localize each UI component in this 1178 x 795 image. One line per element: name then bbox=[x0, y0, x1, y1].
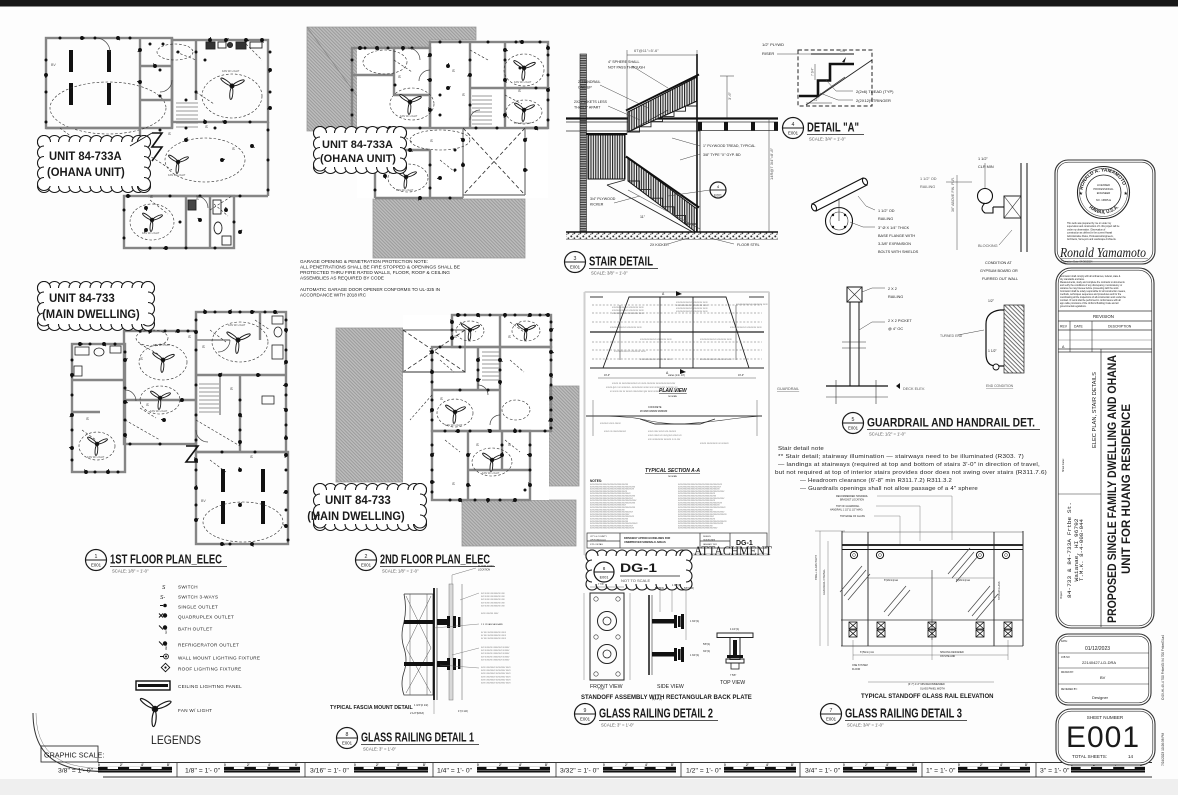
svg-text:SINGLE OUTLET: SINGLE OUTLET bbox=[178, 605, 218, 610]
svg-text:##### ## ############# ## ####: ##### ## ############# ## #### ####### #… bbox=[612, 383, 676, 385]
svg-text:REV: REV bbox=[1060, 325, 1068, 329]
svg-text:4': 4' bbox=[519, 763, 522, 767]
svg-text:S: S bbox=[232, 146, 235, 151]
svg-text:1/4": 1/4" bbox=[840, 49, 847, 53]
svg-text:1/2": 1/2" bbox=[988, 299, 995, 303]
svg-text:FLOOR: FLOOR bbox=[852, 668, 861, 671]
svg-text:############# ######## ####: ############# ######## #### bbox=[640, 359, 672, 361]
svg-text:7 3/4": 7 3/4" bbox=[811, 68, 815, 76]
svg-text:S: S bbox=[452, 68, 455, 73]
svg-text:1 1/2" OD: 1 1/2" OD bbox=[878, 209, 895, 213]
svg-text:7 5/8": 7 5/8" bbox=[730, 674, 736, 677]
svg-text:1" PLYWOOD TREAD, TYPICAL: 1" PLYWOOD TREAD, TYPICAL bbox=[703, 144, 755, 148]
svg-text:Administrative Rules, Professi: Administrative Rules, Professional Engin… bbox=[1067, 235, 1114, 238]
svg-text:2: 2 bbox=[365, 554, 368, 560]
svg-text:5/8"MIN: 5/8"MIN bbox=[655, 587, 664, 590]
svg-text:2(2x6) TREAD (TYP): 2(2x6) TREAD (TYP) bbox=[856, 89, 894, 94]
svg-text:3: 3 bbox=[574, 256, 577, 262]
svg-text:#### ##### ## ### (### ##### #: #### ##### ## ### (### ##### ## bbox=[648, 435, 682, 437]
svg-text:S: S bbox=[140, 356, 143, 361]
svg-text:FAN W/ LIGHT: FAN W/ LIGHT bbox=[482, 471, 500, 475]
svg-text:GYPSUM BOARD OR: GYPSUM BOARD OR bbox=[980, 269, 1018, 273]
svg-text:but not required at top of int: but not required at top of interior stai… bbox=[775, 470, 1047, 476]
svg-text:1 1/2": 1 1/2" bbox=[988, 349, 998, 353]
svg-text:2': 2' bbox=[376, 763, 379, 767]
svg-text:0: 0 bbox=[98, 763, 100, 767]
svg-text:NOT TO SCALE: NOT TO SCALE bbox=[621, 578, 650, 583]
svg-text:#### ## ###########: #### ## ########### bbox=[604, 431, 627, 433]
svg-text:4': 4' bbox=[886, 763, 889, 767]
svg-text:(MAIN DWELLING): (MAIN DWELLING) bbox=[42, 309, 140, 321]
svg-text:8"(20cm)max: 8"(20cm)max bbox=[956, 579, 971, 582]
svg-text:1 3/4"(4): 1 3/4"(4) bbox=[690, 654, 699, 657]
svg-text:1 3/8"(4): 1 3/8"(4) bbox=[672, 584, 681, 587]
svg-text:TOP EDGE OF GLASS: TOP EDGE OF GLASS bbox=[840, 515, 865, 518]
svg-text:16'-0": 16'-0" bbox=[738, 374, 744, 377]
svg-text:############# ######## ####: ############# ######## #### bbox=[612, 307, 644, 309]
svg-text:01/12/2023: 01/12/2023 bbox=[1085, 646, 1110, 652]
svg-text:2': 2' bbox=[247, 763, 250, 767]
svg-text:ACCORDANCE WITH 2018 IRC: ACCORDANCE WITH 2018 IRC bbox=[300, 293, 366, 298]
svg-text:SPACING DESIGNED: SPACING DESIGNED bbox=[940, 651, 964, 654]
svg-text:############# ######## ####: ############# ######## #### bbox=[676, 305, 708, 307]
svg-text:0: 0 bbox=[843, 763, 845, 767]
svg-text:FAN W/ LIGHT: FAN W/ LIGHT bbox=[150, 409, 168, 413]
svg-text:ELEC PLAN, STAIR DETAILS: ELEC PLAN, STAIR DETAILS bbox=[1092, 372, 1098, 448]
svg-text:1 3/4"(4): 1 3/4"(4) bbox=[690, 620, 699, 623]
svg-text:RAILING: RAILING bbox=[920, 185, 935, 189]
svg-text:S: S bbox=[476, 442, 479, 447]
svg-text:S-: S- bbox=[160, 595, 165, 601]
svg-text:WALL MOUNT LIGHTING FIXTURE: WALL MOUNT LIGHTING FIXTURE bbox=[178, 656, 260, 661]
svg-text:contract. IF work shall be p: contract. IF work shall be performed in … bbox=[1060, 299, 1121, 302]
svg-text:11": 11" bbox=[814, 98, 818, 102]
svg-text:BATH OUTLET: BATH OUTLET bbox=[178, 627, 213, 632]
svg-text:This work was prepared by me o: This work was prepared by me or under my bbox=[1067, 222, 1112, 225]
svg-text:S: S bbox=[440, 396, 443, 401]
svg-text:DATE:: DATE: bbox=[1061, 640, 1068, 643]
svg-text:STAIR DETAIL: STAIR DETAIL bbox=[589, 254, 653, 269]
svg-text:22140427-LD-DRA: 22140427-LD-DRA bbox=[1082, 660, 1116, 665]
svg-text:8': 8' bbox=[912, 763, 915, 767]
svg-text:CITY & COUNTY: CITY & COUNTY bbox=[590, 536, 607, 538]
svg-text:## ### ########### ####: ## ### ########### #### bbox=[481, 635, 507, 637]
svg-text:★: ★ bbox=[1124, 191, 1129, 197]
svg-text:GARAGE OPENING & PENETRATION P: GARAGE OPENING & PENETRATION PROTECTION … bbox=[300, 259, 428, 264]
svg-text:4': 4' bbox=[268, 763, 271, 767]
svg-text:S: S bbox=[518, 88, 521, 93]
svg-text:UNIT 84-733A: UNIT 84-733A bbox=[49, 151, 122, 163]
svg-text:E001: E001 bbox=[342, 741, 353, 746]
svg-text:E001: E001 bbox=[848, 426, 859, 431]
svg-text:BLOCKING: BLOCKING bbox=[978, 244, 998, 248]
svg-text:2" HANDRAIL: 2" HANDRAIL bbox=[578, 80, 600, 84]
svg-text:UNIT 84-733: UNIT 84-733 bbox=[325, 495, 391, 507]
svg-text:Contractor shall comply with: Contractor shall comply with all ordinan… bbox=[1060, 275, 1121, 278]
svg-text:#### ###### ####: #### ###### #### bbox=[481, 613, 499, 615]
svg-text:PROTECTED THRU FIRE RATED WALL: PROTECTED THRU FIRE RATED WALLS, FLOOR, … bbox=[300, 270, 451, 275]
svg-text:2X2 PICKETS LESS: 2X2 PICKETS LESS bbox=[574, 100, 608, 104]
svg-text:S: S bbox=[454, 334, 457, 339]
svg-text:############# ######## ####: ############# ######## #### bbox=[736, 304, 768, 306]
svg-text:4': 4' bbox=[1000, 763, 1003, 767]
svg-text:SYSTEM GLASS: SYSTEM GLASS bbox=[998, 581, 1001, 600]
svg-text:TYPICAL STANDOFF GLASS RAIL EL: TYPICAL STANDOFF GLASS RAIL ELEVATION bbox=[861, 694, 993, 700]
svg-text:8: 8 bbox=[603, 566, 606, 571]
svg-text:construction as defined in the: construction as defined in the current H… bbox=[1067, 232, 1113, 235]
svg-text:5/8"(4): 5/8"(4) bbox=[703, 643, 710, 646]
svg-text:4': 4' bbox=[645, 763, 648, 767]
svg-text:### ###### ######## ######: ### ###### ######## ###### bbox=[481, 653, 510, 655]
svg-text:4': 4' bbox=[141, 763, 144, 767]
svg-text:S: S bbox=[250, 454, 253, 459]
svg-text:### ###### ######## ######: ### ###### ######## ###### bbox=[481, 656, 510, 658]
svg-text:0: 0 bbox=[603, 763, 605, 767]
svg-text:5: 5 bbox=[852, 417, 855, 423]
svg-text:RISER: RISER bbox=[762, 51, 774, 56]
svg-text:BV: BV bbox=[201, 499, 206, 503]
svg-text:#### ######## ######## ####: #### ######## ######## #### bbox=[481, 676, 511, 678]
svg-text:LOCATION: LOCATION bbox=[478, 569, 490, 572]
svg-text:FAN W/ LIGHT: FAN W/ LIGHT bbox=[396, 188, 414, 192]
svg-text:4: 4 bbox=[792, 122, 795, 128]
svg-text:E001: E001 bbox=[1066, 721, 1140, 754]
svg-text:## #### ###### #######: ## #### ###### ####### bbox=[640, 410, 668, 413]
svg-text:E001: E001 bbox=[714, 194, 722, 198]
svg-text:FRONT VIEW: FRONT VIEW bbox=[590, 684, 623, 690]
svg-text:## ### ########### ####: ## ### ########### #### bbox=[481, 632, 507, 634]
svg-text:6T@11"=5'-6": 6T@11"=5'-6" bbox=[634, 48, 659, 53]
svg-text:BOLTS WITH SHIELDS: BOLTS WITH SHIELDS bbox=[878, 250, 919, 254]
svg-text:3/8" = 1'- 0": 3/8" = 1'- 0" bbox=[58, 768, 94, 775]
svg-text:3/4" = 1'- 0": 3/4" = 1'- 0" bbox=[805, 768, 841, 775]
svg-text:TOP VIEW: TOP VIEW bbox=[720, 680, 745, 686]
svg-text:1/8" = 1'- 0": 1/8" = 1'- 0" bbox=[185, 768, 221, 775]
svg-text:2': 2' bbox=[625, 763, 628, 767]
svg-text:7: 7 bbox=[830, 708, 833, 714]
svg-text:####### #### #####: ####### #### ##### bbox=[600, 423, 621, 425]
svg-text:8: 8 bbox=[346, 732, 349, 738]
svg-text:ATTACHMENT: ATTACHMENT bbox=[694, 544, 772, 558]
svg-text:FAN W/ LIGHT: FAN W/ LIGHT bbox=[178, 708, 212, 713]
svg-text:3" Ø X 1/4" THICK: 3" Ø X 1/4" THICK bbox=[878, 226, 910, 230]
svg-text:S: S bbox=[146, 402, 149, 407]
svg-text:## ### ########### ####: ## ### ########### #### bbox=[481, 638, 507, 640]
svg-text:############# ######## ####: ############# ######## #### bbox=[676, 302, 708, 304]
svg-text:app cable provisions of the Un: app cable provisions of the Uniform Buil… bbox=[1060, 302, 1119, 305]
svg-text:RAILING: RAILING bbox=[878, 217, 893, 221]
svg-text:DESIGN: DESIGN bbox=[703, 536, 711, 538]
svg-text:STANDOFF ASSEMBLY WITH RECTANG: STANDOFF ASSEMBLY WITH RECTANGULAR BACK … bbox=[581, 695, 752, 701]
svg-text:2ND FLOOR PLAN_ELEC: 2ND FLOOR PLAN_ELEC bbox=[380, 553, 490, 567]
svg-text:CONDITION AT: CONDITION AT bbox=[985, 261, 1012, 265]
svg-text:1 3/4"(2 1/2): 1 3/4"(2 1/2) bbox=[414, 703, 428, 707]
svg-text:##############################: ###################################### bbox=[590, 528, 635, 530]
svg-text:4': 4' bbox=[766, 763, 769, 767]
svg-text:### #### ######### ###: ### #### ######### ### bbox=[481, 602, 506, 604]
svg-text:11": 11" bbox=[640, 215, 646, 219]
svg-text:S: S bbox=[430, 138, 433, 143]
svg-text:supervision and construction o: supervision and construction of 1 this p… bbox=[1067, 225, 1120, 228]
svg-text:### #### ######### ###: ### #### ######### ### bbox=[481, 605, 506, 607]
svg-text:FAN W/ LIGHT: FAN W/ LIGHT bbox=[222, 69, 240, 73]
svg-text:2': 2' bbox=[120, 763, 123, 767]
svg-text:E001: E001 bbox=[788, 131, 799, 136]
svg-text:THAN 4" APART: THAN 4" APART bbox=[574, 106, 601, 110]
svg-text:S: S bbox=[508, 442, 511, 447]
svg-text:T.M.K. 8-4-008-044: T.M.K. 8-4-008-044 bbox=[1079, 519, 1085, 581]
svg-text:under my observation. Observa: under my observation. Observation of bbox=[1067, 228, 1106, 231]
svg-text:ASSEMBLIES AS REQUIRED BY CODE: ASSEMBLIES AS REQUIRED BY CODE bbox=[300, 276, 384, 281]
svg-text:2': 2' bbox=[499, 763, 502, 767]
svg-text:ONE/UP: ONE/UP bbox=[578, 86, 592, 90]
svg-text:QUADRUPLEX OUTLET: QUADRUPLEX OUTLET bbox=[178, 615, 234, 620]
svg-text:SCALE: 1/8" = 1'-0": SCALE: 1/8" = 1'-0" bbox=[382, 569, 419, 574]
svg-text:no scale: no scale bbox=[668, 475, 678, 478]
svg-text:S: S bbox=[462, 92, 465, 97]
svg-text:8': 8' bbox=[545, 763, 548, 767]
svg-text:8': 8' bbox=[423, 763, 426, 767]
svg-text:6"(50cm) min: 6"(50cm) min bbox=[860, 651, 875, 654]
svg-text:9: 9 bbox=[584, 708, 587, 714]
svg-text:1/4" = 1'- 0": 1/4" = 1'- 0" bbox=[437, 768, 473, 775]
svg-text:0: 0 bbox=[224, 763, 226, 767]
svg-text:O 09-HI-49-4 700 Frtbe/GI 94 7: O 09-HI-49-4 700 Frtbe/GI 94 700 Frtbe/G… bbox=[1161, 635, 1165, 700]
svg-text:ON SITE AND: ON SITE AND bbox=[940, 655, 955, 658]
svg-text:E001: E001 bbox=[826, 717, 837, 722]
svg-text:##### ######### ## ######: ##### ######### ## ###### bbox=[700, 443, 729, 445]
svg-text:— Guardrails openings shall no: — Guardrails openings shall not allow pa… bbox=[800, 486, 978, 492]
svg-text:FAN W/ LIGHT: FAN W/ LIGHT bbox=[168, 173, 186, 177]
svg-text:END CONDITION: END CONDITION bbox=[986, 384, 1014, 388]
svg-text:TYPICAL FASCIA MOUNT DETAIL: TYPICAL FASCIA MOUNT DETAIL bbox=[330, 705, 413, 711]
svg-text:E001: E001 bbox=[361, 563, 372, 568]
svg-text:3'WALL GLASS HIGHT: 3'WALL GLASS HIGHT bbox=[815, 555, 818, 580]
svg-text:Architects, Surveyors and Land: Architects, Surveyors and Landscape Arch… bbox=[1067, 238, 1117, 241]
svg-text:GFI: GFI bbox=[164, 629, 168, 634]
svg-text:ALL PENETRATIONS SHALL BE FIRE: ALL PENETRATIONS SHALL BE FIRE STOPPED &… bbox=[300, 265, 460, 270]
svg-text:DRAWN BY:: DRAWN BY: bbox=[1061, 671, 1074, 674]
svg-text:SCALE: 3/4" = 1'-0": SCALE: 3/4" = 1'-0" bbox=[847, 723, 884, 728]
svg-text:DRIVEWAY APRON GUIDELINES FOR: DRIVEWAY APRON GUIDELINES FOR bbox=[624, 536, 670, 540]
svg-text:DETAIL "A": DETAIL "A" bbox=[807, 120, 859, 135]
svg-text:### ###### ######## ######: ### ###### ######## ###### bbox=[481, 647, 510, 649]
svg-text:2': 2' bbox=[980, 763, 983, 767]
svg-text:SWITCH: SWITCH bbox=[178, 585, 198, 590]
svg-text:14R@7 3/4"=8'-8": 14R@7 3/4"=8'-8" bbox=[769, 147, 774, 180]
svg-text:FLOOR STRL: FLOOR STRL bbox=[737, 243, 760, 247]
svg-text:### #### ######### ###: ### #### ######### ### bbox=[481, 599, 506, 601]
svg-text:DESCRIPTION: DESCRIPTION bbox=[1108, 325, 1132, 329]
svg-text:3-3/8" EXPANSION: 3-3/8" EXPANSION bbox=[878, 242, 911, 246]
svg-text:TOTAL SHEETS:: TOTAL SHEETS: bbox=[1072, 754, 1107, 759]
svg-text:S: S bbox=[86, 416, 89, 421]
svg-text:############# ######## ####: ############# ######## #### bbox=[640, 339, 672, 341]
svg-text:1/2" PLYWD: 1/2" PLYWD bbox=[762, 42, 784, 47]
svg-text:14: 14 bbox=[1128, 754, 1134, 759]
svg-text:2(2X12)STRINGER: 2(2X12)STRINGER bbox=[856, 98, 891, 103]
svg-text:GUARDRAIL: GUARDRAIL bbox=[777, 387, 799, 391]
svg-text:and verify the conditions of a: and verify the conditions of any discrep… bbox=[1060, 284, 1122, 287]
svg-text:S: S bbox=[150, 194, 153, 199]
svg-text:### #### ######### ###: ### #### ######### ### bbox=[481, 596, 506, 598]
svg-text:### #### ######### ###: ### #### ######### ### bbox=[481, 593, 506, 595]
svg-text:3/8" TYPE "X" GYP. BD: 3/8" TYPE "X" GYP. BD bbox=[703, 153, 741, 157]
svg-text:2': 2' bbox=[746, 763, 749, 767]
svg-text:GUIDELINES: GUIDELINES bbox=[703, 540, 716, 542]
svg-text:CLR MIN: CLR MIN bbox=[978, 165, 994, 169]
svg-text:SCALE: 1/8" = 1'-0": SCALE: 1/8" = 1'-0" bbox=[112, 569, 149, 574]
svg-text:8"(20cm)max: 8"(20cm)max bbox=[884, 579, 899, 582]
svg-text:methods, techniques sequences: methods, techniques sequences and proced… bbox=[1060, 293, 1122, 296]
svg-text:8': 8' bbox=[791, 763, 794, 767]
svg-text:3/16" = 1'- 0": 3/16" = 1'- 0" bbox=[310, 768, 349, 775]
svg-text:S: S bbox=[230, 386, 233, 391]
svg-text:S: S bbox=[452, 481, 455, 486]
svg-text:Measurements, study and comple: Measurements, study and complete the con… bbox=[1060, 281, 1125, 284]
svg-text:JOB NO:: JOB NO: bbox=[1061, 657, 1071, 659]
svg-text:### ###### ######## ######: ### ###### ######## ###### bbox=[481, 659, 510, 661]
svg-text:NO. 16805-E: NO. 16805-E bbox=[1096, 198, 1111, 202]
svg-text:BRACKET LOCATION: BRACKET LOCATION bbox=[840, 499, 864, 502]
svg-text:############# ######## ####: ############# ######## #### bbox=[676, 308, 708, 310]
svg-text:REVIEWED BY:: REVIEWED BY: bbox=[1061, 689, 1078, 691]
svg-text:Sheet name:: Sheet name: bbox=[1062, 458, 1065, 472]
svg-text:### ###### ######## ######: ### ###### ######## ###### bbox=[481, 650, 510, 652]
svg-text:2 X 2: 2 X 2 bbox=[888, 287, 897, 291]
svg-text:3" = 1'- 0": 3" = 1'- 0" bbox=[1040, 768, 1070, 775]
svg-text:UNIT FOR HUANG RESIDENCE: UNIT FOR HUANG RESIDENCE bbox=[1119, 404, 1133, 574]
svg-text:36" ABOVE FIN. FLR.: 36" ABOVE FIN. FLR. bbox=[951, 177, 955, 212]
svg-text:0: 0 bbox=[958, 763, 960, 767]
svg-text:1"(3 1/2): 1"(3 1/2) bbox=[458, 709, 468, 713]
svg-text:S: S bbox=[205, 124, 208, 129]
svg-text:NOTES:: NOTES: bbox=[590, 479, 602, 483]
svg-text:1 1/2": 1 1/2" bbox=[978, 157, 988, 161]
svg-text:LICENSED: LICENSED bbox=[1097, 183, 1110, 187]
svg-text:0: 0 bbox=[477, 763, 479, 767]
svg-text:#### #### #### ### ######: #### #### #### ### ###### bbox=[648, 431, 677, 433]
svg-text:coordinating all the inspectio: coordinating all the inspections of all … bbox=[1060, 296, 1126, 299]
svg-text:OF HONOLULU: OF HONOLULU bbox=[590, 540, 606, 542]
svg-text:3/4" PLYWOOD: 3/4" PLYWOOD bbox=[590, 197, 616, 201]
svg-text:DECK ELEV.: DECK ELEV. bbox=[903, 387, 925, 391]
svg-text:FAN W/ LIGHT: FAN W/ LIGHT bbox=[400, 114, 418, 118]
svg-text:REF: REF bbox=[164, 644, 168, 650]
svg-text:GLASS PANEL WIDTH: GLASS PANEL WIDTH bbox=[920, 688, 945, 691]
svg-text:0: 0 bbox=[354, 763, 356, 767]
svg-text:NOT PASS THROUGH: NOT PASS THROUGH bbox=[608, 66, 645, 70]
svg-text:UNIT 84-733A: UNIT 84-733A bbox=[322, 139, 393, 151]
svg-text:8': 8' bbox=[671, 763, 674, 767]
svg-text:(OHANA UNIT): (OHANA UNIT) bbox=[47, 167, 125, 179]
svg-text:1ST FLOOR PLAN_ELEC: 1ST FLOOR PLAN_ELEC bbox=[110, 553, 222, 567]
svg-text:DATE: DATE bbox=[1074, 325, 1084, 329]
svg-text:FAN W/ LIGHT: FAN W/ LIGHT bbox=[87, 455, 105, 459]
svg-text:4" SPHERE SHALL: 4" SPHERE SHALL bbox=[608, 60, 639, 64]
svg-text:############# ######## ####: ############# ######## #### bbox=[612, 310, 644, 312]
svg-text:CEILING LIGHTING PANEL: CEILING LIGHTING PANEL bbox=[178, 684, 242, 689]
svg-text:★: ★ bbox=[1079, 191, 1084, 197]
svg-text:SHEET NUMBER: SHEET NUMBER bbox=[1087, 715, 1124, 720]
svg-text:GLASS RAILING DETAIL 2: GLASS RAILING DETAIL 2 bbox=[599, 707, 713, 721]
svg-text:(6'-7") 4'-6" MIN RECOMMENDED: (6'-7") 4'-6" MIN RECOMMENDED bbox=[908, 683, 945, 686]
svg-text:BV: BV bbox=[1100, 675, 1106, 680]
svg-text:GUARDRAIL AND HANDRAIL DET.: GUARDRAIL AND HANDRAIL DET. bbox=[867, 418, 1035, 430]
svg-text:SWITCH 3-WAYS: SWITCH 3-WAYS bbox=[178, 595, 218, 600]
svg-text:FAN W/ LIGHT: FAN W/ LIGHT bbox=[514, 80, 532, 84]
svg-text:PROFESSIONAL: PROFESSIONAL bbox=[1093, 187, 1114, 191]
svg-text:RAILING: RAILING bbox=[888, 295, 903, 299]
svg-text:governmental regulations.: governmental regulations. bbox=[1060, 305, 1087, 308]
svg-text:#### ######## ######## ####: #### ######## ######## #### bbox=[481, 670, 511, 672]
svg-text:############# ######## ####: ############# ######## #### bbox=[700, 359, 732, 361]
svg-text:### ######### ###### # ## ###: ### ######### ###### # ## ### bbox=[648, 439, 681, 441]
svg-text:S: S bbox=[398, 74, 401, 79]
svg-text:BASE FLANGE WITH: BASE FLANGE WITH bbox=[878, 234, 915, 238]
svg-text:#### ######## ######## ####: #### ######## ######## #### bbox=[481, 667, 511, 669]
svg-text:5/8"(GW): 5/8"(GW) bbox=[684, 587, 694, 590]
svg-text:3'-6": 3'-6" bbox=[727, 91, 732, 100]
svg-text:S: S bbox=[202, 344, 205, 349]
svg-text:FAN W/ LIGHT: FAN W/ LIGHT bbox=[514, 121, 532, 125]
svg-text:ONE SYSTEM: ONE SYSTEM bbox=[852, 664, 868, 667]
svg-text:##############################: ################################## bbox=[678, 528, 718, 530]
svg-text:3/32" = 1'- 0": 3/32" = 1'- 0" bbox=[560, 768, 599, 775]
svg-text:UNIT 84-733: UNIT 84-733 bbox=[49, 293, 115, 305]
svg-text:GLASS RAILING DETAIL 1: GLASS RAILING DETAIL 1 bbox=[361, 731, 474, 745]
svg-text:E001: E001 bbox=[570, 265, 581, 270]
svg-text:— landings at stairways (requi: — landings at stairways (required at top… bbox=[778, 462, 1040, 468]
svg-text:PLAN VIEW: PLAN VIEW bbox=[659, 388, 688, 394]
svg-text:0: 0 bbox=[724, 763, 726, 767]
svg-text:E001: E001 bbox=[91, 563, 102, 568]
svg-text:1 1/2" OD: 1 1/2" OD bbox=[920, 177, 937, 181]
svg-text:SCALE: 1/2" = 1'-0": SCALE: 1/2" = 1'-0" bbox=[869, 432, 906, 437]
svg-text:7/24/2023 10:26:38 PM: 7/24/2023 10:26:38 PM bbox=[1161, 733, 1165, 766]
svg-text:ENGINEER: ENGINEER bbox=[1097, 191, 1111, 195]
svg-text:REFRIGERATOR OUTLET: REFRIGERATOR OUTLET bbox=[178, 643, 239, 648]
svg-text:varies (min. 10'): varies (min. 10') bbox=[668, 374, 685, 377]
svg-text:GLASS RAILING DETAIL 3: GLASS RAILING DETAIL 3 bbox=[845, 707, 962, 721]
svg-text:SCALE: 3" = 1'-0": SCALE: 3" = 1'-0" bbox=[601, 723, 634, 728]
svg-text:city standards and laws.: city standards and laws. bbox=[1060, 278, 1085, 281]
svg-text:PROPOSED SINGLE FAMILY DWELLIN: PROPOSED SINGLE FAMILY DWELLING AND OHAN… bbox=[1105, 355, 1119, 623]
svg-text:(OHANA UNIT): (OHANA UNIT) bbox=[320, 153, 396, 165]
svg-text:S: S bbox=[168, 131, 171, 136]
svg-text:no scale: no scale bbox=[668, 395, 678, 398]
svg-text:2X KICKER: 2X KICKER bbox=[650, 243, 669, 247]
svg-text:@ 4" OC: @ 4" OC bbox=[888, 327, 903, 331]
svg-text:S: S bbox=[508, 334, 511, 339]
svg-text:BV: BV bbox=[51, 63, 56, 67]
svg-text:CONCRETE: CONCRETE bbox=[648, 406, 662, 409]
svg-text:HANDRAIL 1 1/2"(1 1/2" MAX): HANDRAIL 1 1/2"(1 1/2" MAX) bbox=[830, 509, 863, 512]
svg-text:SCALE: 3/8" = 1'-0": SCALE: 3/8" = 1'-0" bbox=[591, 271, 628, 276]
svg-text:variance he may foresee before: variance he may foresee before proceedin… bbox=[1060, 287, 1119, 290]
svg-text:KICKER: KICKER bbox=[590, 203, 604, 207]
svg-text:S: S bbox=[196, 196, 199, 201]
svg-text:############# ######## ####: ############# ######## #### bbox=[612, 313, 644, 315]
svg-text:Contractor shall be solely re: Contractor shall be solely responsible f… bbox=[1060, 290, 1126, 293]
svg-text:DG-1: DG-1 bbox=[620, 561, 657, 575]
svg-text:############# ######## ####: ############# ######## #### bbox=[676, 311, 708, 313]
svg-text:FAN W/ LIGHT: FAN W/ LIGHT bbox=[228, 323, 246, 327]
svg-text:TYPICAL SECTION A-A: TYPICAL SECTION A-A bbox=[645, 468, 700, 474]
svg-text:S: S bbox=[188, 334, 191, 339]
svg-text:2': 2' bbox=[865, 763, 868, 767]
svg-text:2 1/2"(MAX): 2 1/2"(MAX) bbox=[410, 711, 424, 715]
